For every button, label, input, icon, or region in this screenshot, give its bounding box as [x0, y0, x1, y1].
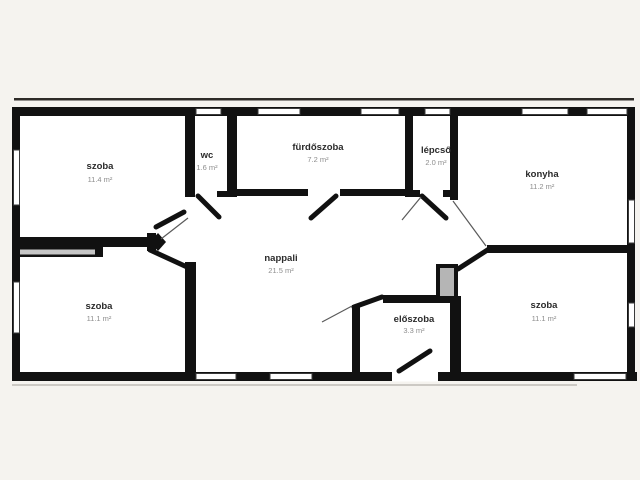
window-left-szoba-tl	[14, 150, 20, 205]
room-name: szoba	[531, 300, 559, 311]
room-name: lépcső	[421, 145, 451, 156]
room-name: nappali	[264, 253, 297, 264]
shaft-block	[438, 266, 456, 298]
window-top-furdoszoba-2	[361, 109, 399, 115]
plan-shadow-line	[12, 384, 577, 386]
wall-wc-right	[227, 107, 237, 197]
wall-lepcso-bottom-right-stub	[443, 190, 458, 197]
wall-szoba-tl-bottom	[12, 237, 155, 247]
wall-lepcso-bottom-left-stub	[405, 190, 420, 197]
wall-furdoszoba-bottom-right	[340, 189, 405, 196]
wall-outer-bottom	[12, 372, 637, 381]
room-area: 11.1 m²	[532, 314, 557, 323]
room-name: konyha	[525, 169, 559, 180]
wall-furdoszoba-right	[405, 107, 413, 196]
window-left-szoba-bl	[14, 282, 20, 333]
room-name: fürdőszoba	[292, 142, 344, 153]
floorplan-page: szoba 11.4 m² wc 1.6 m² fürdőszoba 7.2 m…	[0, 0, 640, 480]
room-area: 7.2 m²	[307, 155, 329, 164]
room-area: 2.0 m²	[425, 158, 447, 167]
window-top-lepcso	[425, 109, 450, 115]
room-area: 21.5 m²	[268, 266, 294, 275]
wall-eloszoba-right	[450, 296, 461, 372]
window-top-konyha-2	[587, 109, 627, 115]
wall-wc-bottom-stub	[217, 191, 237, 197]
room-area: 11.1 m²	[87, 314, 112, 323]
window-right-konyha	[629, 200, 635, 243]
window-bottom-szoba-br	[574, 374, 626, 380]
window-bottom-szoba-bl	[196, 374, 236, 380]
room-area: 11.4 m²	[88, 175, 113, 184]
window-top-konyha-1	[522, 109, 568, 115]
wall-szoba-bl-right	[185, 262, 196, 372]
room-name: előszoba	[394, 314, 435, 325]
roof-edge-line	[14, 98, 634, 101]
window-top-wc	[196, 109, 221, 115]
wall-konyha-szoba-br	[487, 245, 634, 253]
window-right-szoba-br	[629, 303, 635, 327]
floorplan-drawing: szoba 11.4 m² wc 1.6 m² fürdőszoba 7.2 m…	[0, 0, 640, 480]
wall-furdoszoba-bottom-left	[237, 189, 308, 196]
room-area: 11.2 m²	[530, 182, 555, 191]
room-area: 3.3 m²	[403, 326, 425, 335]
room-name: wc	[200, 150, 214, 161]
room-area: 1.6 m²	[196, 163, 218, 172]
room-name: szoba	[86, 301, 114, 312]
room-name: szoba	[87, 161, 115, 172]
window-bottom-nappali	[270, 374, 312, 380]
window-top-furdoszoba-1	[258, 109, 300, 115]
wall-eloszoba-left	[352, 305, 360, 372]
wall-lepcso-right	[450, 107, 458, 200]
wall-szoba-tl-right	[185, 107, 195, 197]
wall-outer-right	[627, 107, 635, 381]
wall-inset-window	[20, 250, 95, 255]
